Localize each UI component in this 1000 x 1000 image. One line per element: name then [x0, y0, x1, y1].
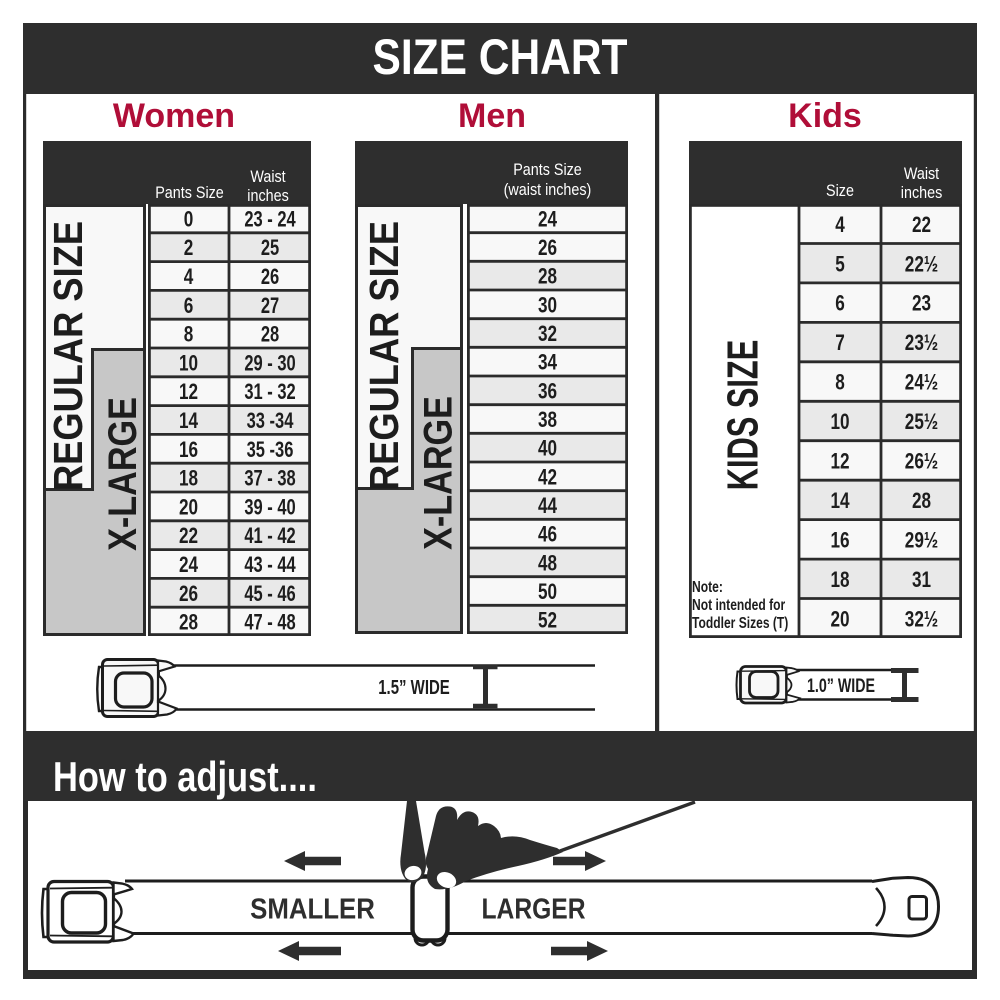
- svg-text:0: 0: [184, 207, 194, 232]
- svg-text:22: 22: [179, 524, 198, 549]
- svg-text:16: 16: [830, 528, 849, 553]
- svg-text:1.0” WIDE: 1.0” WIDE: [807, 675, 875, 696]
- svg-text:35 -36: 35 -36: [247, 438, 294, 463]
- svg-text:23½: 23½: [905, 331, 938, 356]
- svg-text:34: 34: [538, 351, 557, 376]
- svg-text:Not intended for: Not intended for: [692, 596, 786, 614]
- svg-text:12: 12: [179, 380, 198, 405]
- svg-text:Waist: Waist: [250, 168, 286, 186]
- svg-text:31: 31: [912, 568, 931, 593]
- svg-text:22: 22: [912, 213, 931, 238]
- svg-text:inches: inches: [247, 187, 289, 205]
- svg-text:Toddler Sizes (T): Toddler Sizes (T): [692, 614, 788, 632]
- svg-text:Note:: Note:: [692, 578, 723, 596]
- svg-text:42: 42: [538, 465, 557, 490]
- svg-text:Kids: Kids: [788, 97, 862, 135]
- svg-text:28: 28: [912, 489, 931, 514]
- svg-text:inches: inches: [901, 184, 943, 202]
- svg-text:26½: 26½: [905, 450, 938, 475]
- svg-text:26: 26: [261, 265, 280, 290]
- svg-text:How to adjust....: How to adjust....: [53, 754, 317, 801]
- svg-text:KIDS SIZE: KIDS SIZE: [719, 340, 768, 491]
- svg-text:47 - 48: 47 - 48: [244, 610, 296, 635]
- svg-text:SIZE CHART: SIZE CHART: [373, 29, 628, 85]
- svg-text:52: 52: [538, 609, 557, 634]
- svg-text:41 - 42: 41 - 42: [244, 524, 296, 549]
- svg-text:7: 7: [835, 331, 845, 356]
- svg-text:6: 6: [184, 294, 194, 319]
- svg-text:(waist inches): (waist inches): [504, 181, 592, 199]
- svg-text:45 - 46: 45 - 46: [244, 582, 296, 607]
- svg-text:16: 16: [179, 438, 198, 463]
- svg-text:36: 36: [538, 379, 557, 404]
- svg-text:22½: 22½: [905, 252, 938, 277]
- svg-text:12: 12: [830, 450, 849, 475]
- svg-text:LARGER: LARGER: [481, 893, 585, 925]
- svg-text:14: 14: [179, 409, 198, 434]
- svg-text:18: 18: [830, 568, 849, 593]
- svg-text:20: 20: [179, 495, 198, 520]
- svg-text:Women: Women: [113, 97, 235, 135]
- svg-text:44: 44: [538, 494, 557, 519]
- svg-text:REGULAR SIZE: REGULAR SIZE: [46, 221, 92, 491]
- svg-text:SMALLER: SMALLER: [250, 892, 375, 925]
- svg-text:28: 28: [538, 265, 557, 290]
- svg-text:23: 23: [912, 292, 931, 317]
- svg-text:6: 6: [835, 292, 845, 317]
- svg-text:24: 24: [179, 553, 198, 578]
- svg-text:33 -34: 33 -34: [247, 409, 294, 434]
- svg-text:38: 38: [538, 408, 557, 433]
- svg-text:48: 48: [538, 551, 557, 576]
- svg-text:43 - 44: 43 - 44: [244, 553, 296, 578]
- svg-text:10: 10: [179, 351, 198, 376]
- svg-text:X-LARGE: X-LARGE: [415, 396, 460, 550]
- svg-text:26: 26: [538, 236, 557, 261]
- svg-text:Pants Size: Pants Size: [513, 161, 582, 179]
- svg-text:28: 28: [261, 322, 280, 347]
- svg-text:28: 28: [179, 611, 198, 636]
- svg-text:29½: 29½: [905, 528, 938, 553]
- svg-text:1.5” WIDE: 1.5” WIDE: [378, 676, 450, 699]
- svg-text:39 - 40: 39 - 40: [244, 495, 296, 520]
- svg-text:20: 20: [830, 607, 849, 632]
- svg-text:5: 5: [835, 252, 845, 277]
- svg-text:4: 4: [184, 265, 194, 290]
- svg-text:8: 8: [184, 323, 194, 348]
- svg-text:40: 40: [538, 437, 557, 462]
- svg-text:25½: 25½: [905, 410, 938, 435]
- svg-text:23 - 24: 23 - 24: [244, 207, 296, 232]
- svg-text:27: 27: [261, 294, 279, 319]
- svg-text:4: 4: [835, 213, 845, 238]
- svg-text:8: 8: [835, 371, 845, 396]
- svg-text:31 - 32: 31 - 32: [244, 380, 296, 405]
- svg-text:46: 46: [538, 523, 557, 548]
- svg-text:REGULAR SIZE: REGULAR SIZE: [362, 221, 408, 491]
- svg-text:10: 10: [830, 410, 849, 435]
- svg-text:26: 26: [179, 582, 198, 607]
- svg-text:50: 50: [538, 580, 557, 605]
- svg-text:25: 25: [261, 236, 280, 261]
- svg-text:Men: Men: [458, 97, 526, 135]
- svg-text:24: 24: [538, 207, 557, 232]
- svg-text:29 - 30: 29 - 30: [244, 351, 296, 376]
- svg-text:Waist: Waist: [904, 165, 940, 183]
- svg-text:18: 18: [179, 467, 198, 492]
- svg-text:14: 14: [830, 489, 849, 514]
- svg-text:Size: Size: [826, 182, 854, 200]
- svg-text:Pants Size: Pants Size: [155, 184, 224, 202]
- svg-text:37 - 38: 37 - 38: [244, 466, 296, 491]
- svg-text:24½: 24½: [905, 371, 938, 396]
- svg-text:32: 32: [538, 322, 557, 347]
- svg-text:X-LARGE: X-LARGE: [100, 397, 145, 551]
- svg-text:2: 2: [184, 236, 194, 261]
- svg-text:30: 30: [538, 293, 557, 318]
- svg-text:32½: 32½: [905, 607, 938, 632]
